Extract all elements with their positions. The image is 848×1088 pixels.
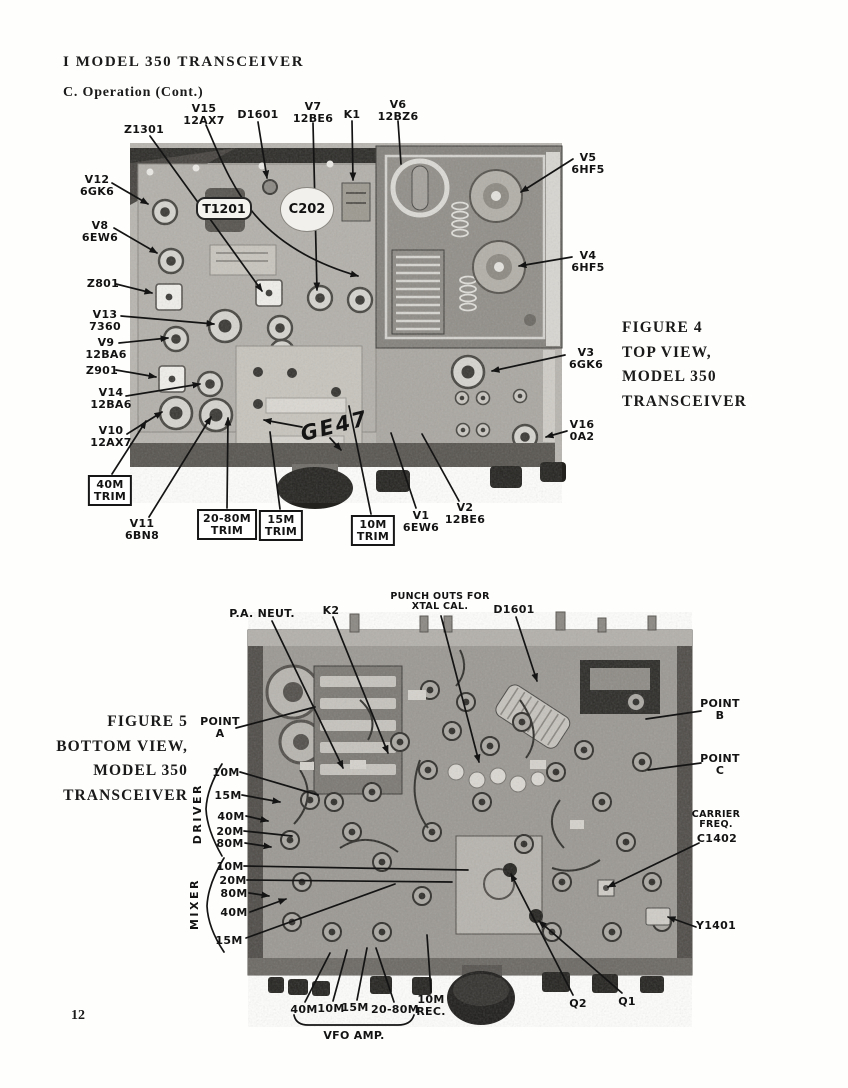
vfo-item-40m: 40M	[290, 1004, 317, 1016]
mixer-item-40m: 40M	[220, 907, 247, 919]
callout-v2: V2 12BE6	[445, 502, 485, 525]
callout-v10: V10 12AX7	[90, 425, 131, 448]
callout-point-a: POINT A	[200, 716, 240, 739]
section-subtitle: C. Operation (Cont.)	[63, 85, 203, 101]
figure5-caption: FIGURE 5 BOTTOM VIEW, MODEL 350 TRANSCEI…	[40, 710, 188, 808]
driver-item-20m: 20M	[216, 826, 243, 838]
mixer-group-label: MIXER	[188, 878, 201, 930]
callout-punch-outs: PUNCH OUTS FOR XTAL CAL.	[390, 592, 489, 612]
driver-item-10m: 10M	[212, 767, 239, 779]
callout-k1: K1	[344, 109, 361, 121]
callout-trim-20-80m: 20-80M TRIM	[197, 509, 257, 540]
mixer-item-80m: 80M	[220, 888, 247, 900]
callout-q2: Q2	[569, 998, 587, 1010]
mixer-item-10m: 10M	[216, 861, 243, 873]
callout-trim-10m: 10M TRIM	[351, 515, 395, 546]
callout-10m-rec: 10M REC.	[416, 994, 445, 1017]
callout-vfo-amp: VFO AMP.	[323, 1030, 384, 1042]
callout-v9: V9 12BA6	[85, 337, 126, 360]
callout-y1401: Y1401	[696, 920, 736, 932]
callout-z901: Z901	[86, 365, 118, 377]
callout-pa-neut: P.A. NEUT.	[229, 608, 295, 620]
callout-c1402: C1402	[697, 833, 737, 845]
figure5-photo	[248, 612, 692, 1027]
driver-item-15m: 15M	[214, 790, 241, 802]
callout-trim-40m: 40M TRIM	[88, 475, 132, 506]
callout-v7: V7 12BE6	[293, 101, 333, 124]
callout-v6: V6 12BZ6	[378, 99, 419, 122]
callout-v11: V11 6BN8	[125, 518, 159, 541]
callout-v3: V3 6GK6	[569, 347, 603, 370]
figure4-caption: FIGURE 4 TOP VIEW, MODEL 350 TRANSCEIVER	[622, 316, 747, 414]
callout-d1601-fig5: D1601	[493, 604, 534, 616]
callout-v15: V15 12AX7	[183, 103, 224, 126]
driver-item-40m: 40M	[217, 811, 244, 823]
driver-item-80m: 80M	[216, 838, 243, 850]
callout-z801: Z801	[87, 278, 119, 290]
photo-tag-t1201: T1201	[196, 197, 252, 220]
callout-v14: V14 12BA6	[90, 387, 131, 410]
mixer-item-20m: 20M	[219, 875, 246, 887]
vfo-item-20-80m: 20-80M	[371, 1004, 419, 1016]
callout-v5: V5 6HF5	[571, 152, 604, 175]
mixer-item-15m: 15M	[215, 935, 242, 947]
callout-v16: V16 0A2	[570, 419, 595, 442]
callout-z1301: Z1301	[124, 124, 164, 136]
section-title: I MODEL 350 TRANSCEIVER	[63, 54, 304, 71]
callout-point-c: POINT C	[700, 753, 740, 776]
callout-v1: V1 6EW6	[403, 510, 439, 533]
callout-k2: K2	[323, 605, 340, 617]
photo-tag-c202: C202	[280, 187, 334, 232]
vfo-item-15m: 15M	[341, 1002, 368, 1014]
callout-v4: V4 6HF5	[571, 250, 604, 273]
driver-group-label: DRIVER	[191, 783, 204, 844]
callout-d1601-fig4: D1601	[237, 109, 278, 121]
callout-v13: V13 7360	[89, 309, 121, 332]
callout-v12: V12 6GK6	[80, 174, 114, 197]
callout-point-b: POINT B	[700, 698, 740, 721]
page-number: 12	[71, 1008, 85, 1024]
callout-v8: V8 6EW6	[82, 220, 118, 243]
callout-trim-15m: 15M TRIM	[259, 510, 303, 541]
manual-page: I MODEL 350 TRANSCEIVER C. Operation (Co…	[0, 0, 848, 1088]
callout-q1: Q1	[618, 996, 636, 1008]
callout-carrier-freq: CARRIER FREQ.	[692, 810, 740, 830]
